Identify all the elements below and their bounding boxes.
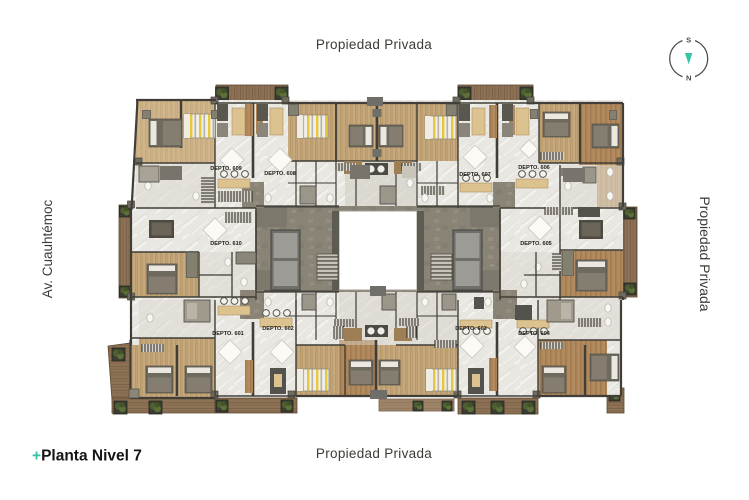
svg-text:Av. Cuauhtémoc: Av. Cuauhtémoc: [40, 199, 55, 298]
svg-text:DEPTO. 601: DEPTO. 601: [212, 331, 244, 337]
svg-text:DEPTO. 606: DEPTO. 606: [518, 165, 550, 171]
svg-text:Propiedad Privada: Propiedad Privada: [316, 446, 432, 461]
svg-text:DEPTO. 610: DEPTO. 610: [210, 241, 242, 247]
svg-text:DEPTO. 608: DEPTO. 608: [264, 171, 296, 177]
svg-text:N: N: [686, 74, 691, 83]
svg-text:S: S: [686, 35, 691, 44]
svg-text:DEPTO. 603: DEPTO. 603: [455, 326, 487, 332]
svg-text:DEPTO. 604: DEPTO. 604: [518, 331, 550, 337]
svg-text:DEPTO. 605: DEPTO. 605: [520, 241, 552, 247]
svg-text:Propiedad Privada: Propiedad Privada: [316, 37, 432, 52]
svg-text:DEPTO. 607: DEPTO. 607: [459, 172, 491, 178]
svg-text:+Planta Nivel 7: +Planta Nivel 7: [32, 448, 142, 465]
svg-text:DEPTO. 602: DEPTO. 602: [262, 326, 294, 332]
svg-text:Propiedad Privada: Propiedad Privada: [697, 196, 713, 311]
svg-text:DEPTO. 609: DEPTO. 609: [210, 166, 242, 172]
